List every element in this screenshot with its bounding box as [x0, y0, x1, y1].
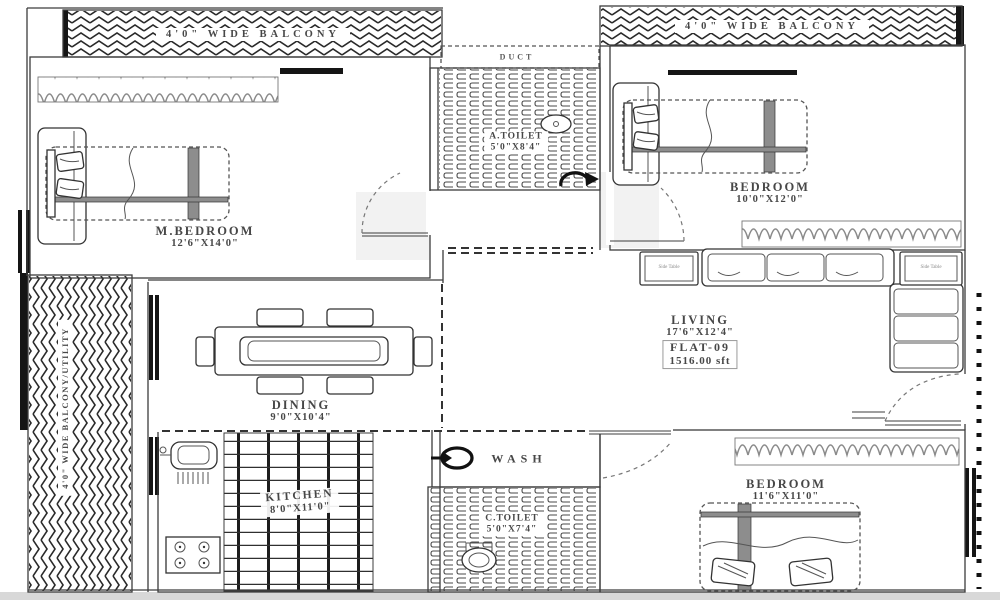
living-label: LIVING 17'6"X12'4" FLAT-09 1516.00 sft	[662, 313, 737, 369]
flat-info-box: FLAT-09 1516.00 sft	[662, 341, 737, 369]
balcony-left-label: 4'0" WIDE BALCONY/UTILITY	[55, 320, 73, 496]
kitchen-stove	[166, 537, 220, 573]
bedroom-tr-wardrobe-strip	[742, 221, 961, 247]
balcony-top-right-label: 4'0" WIDE BALCONY	[675, 16, 869, 34]
side-table-left-label: Side Table	[654, 265, 684, 271]
duct-label: DUCT	[500, 53, 535, 62]
flat-number: FLAT-09	[669, 342, 730, 356]
c-toilet-tiles	[429, 488, 597, 591]
c-toilet-label: C.TOILET 5'0"X7'4"	[480, 513, 544, 536]
wash-label: WASH	[491, 452, 546, 467]
floor-plan: 4'0" WIDE BALCONY 4'0" WIDE BALCONY DUCT…	[0, 0, 1000, 600]
a-toilet-basin	[541, 115, 571, 133]
kitchen-label: KITCHEN 8'0"X11'0"	[260, 487, 340, 519]
a-toilet-label: A.TOILET 5'0"X8'4"	[484, 131, 548, 154]
balcony-top-left-label: 4'0" WIDE BALCONY	[156, 24, 350, 42]
side-table-right-label: Side Table	[916, 265, 946, 271]
flat-area: 1516.00 sft	[669, 355, 730, 368]
balcony-left-hatch	[29, 276, 131, 591]
bedroom-tr-label: BEDROOM 10'0"X12'0"	[730, 180, 810, 206]
a-toilet-tiles	[439, 69, 599, 189]
bedroom-br-label: BEDROOM 11'6"X11'0"	[746, 477, 826, 503]
dining-label: DINING 9'0"X10'4"	[270, 398, 331, 424]
bedroom-br-wardrobe-strip	[735, 438, 959, 465]
m-bedroom-wardrobe-strip	[38, 77, 278, 102]
floor-plan-drawing	[0, 0, 1000, 600]
m-bedroom-label: M.BEDROOM 12'6"X14'0"	[156, 224, 255, 250]
bottom-gray-strip	[0, 592, 1000, 600]
